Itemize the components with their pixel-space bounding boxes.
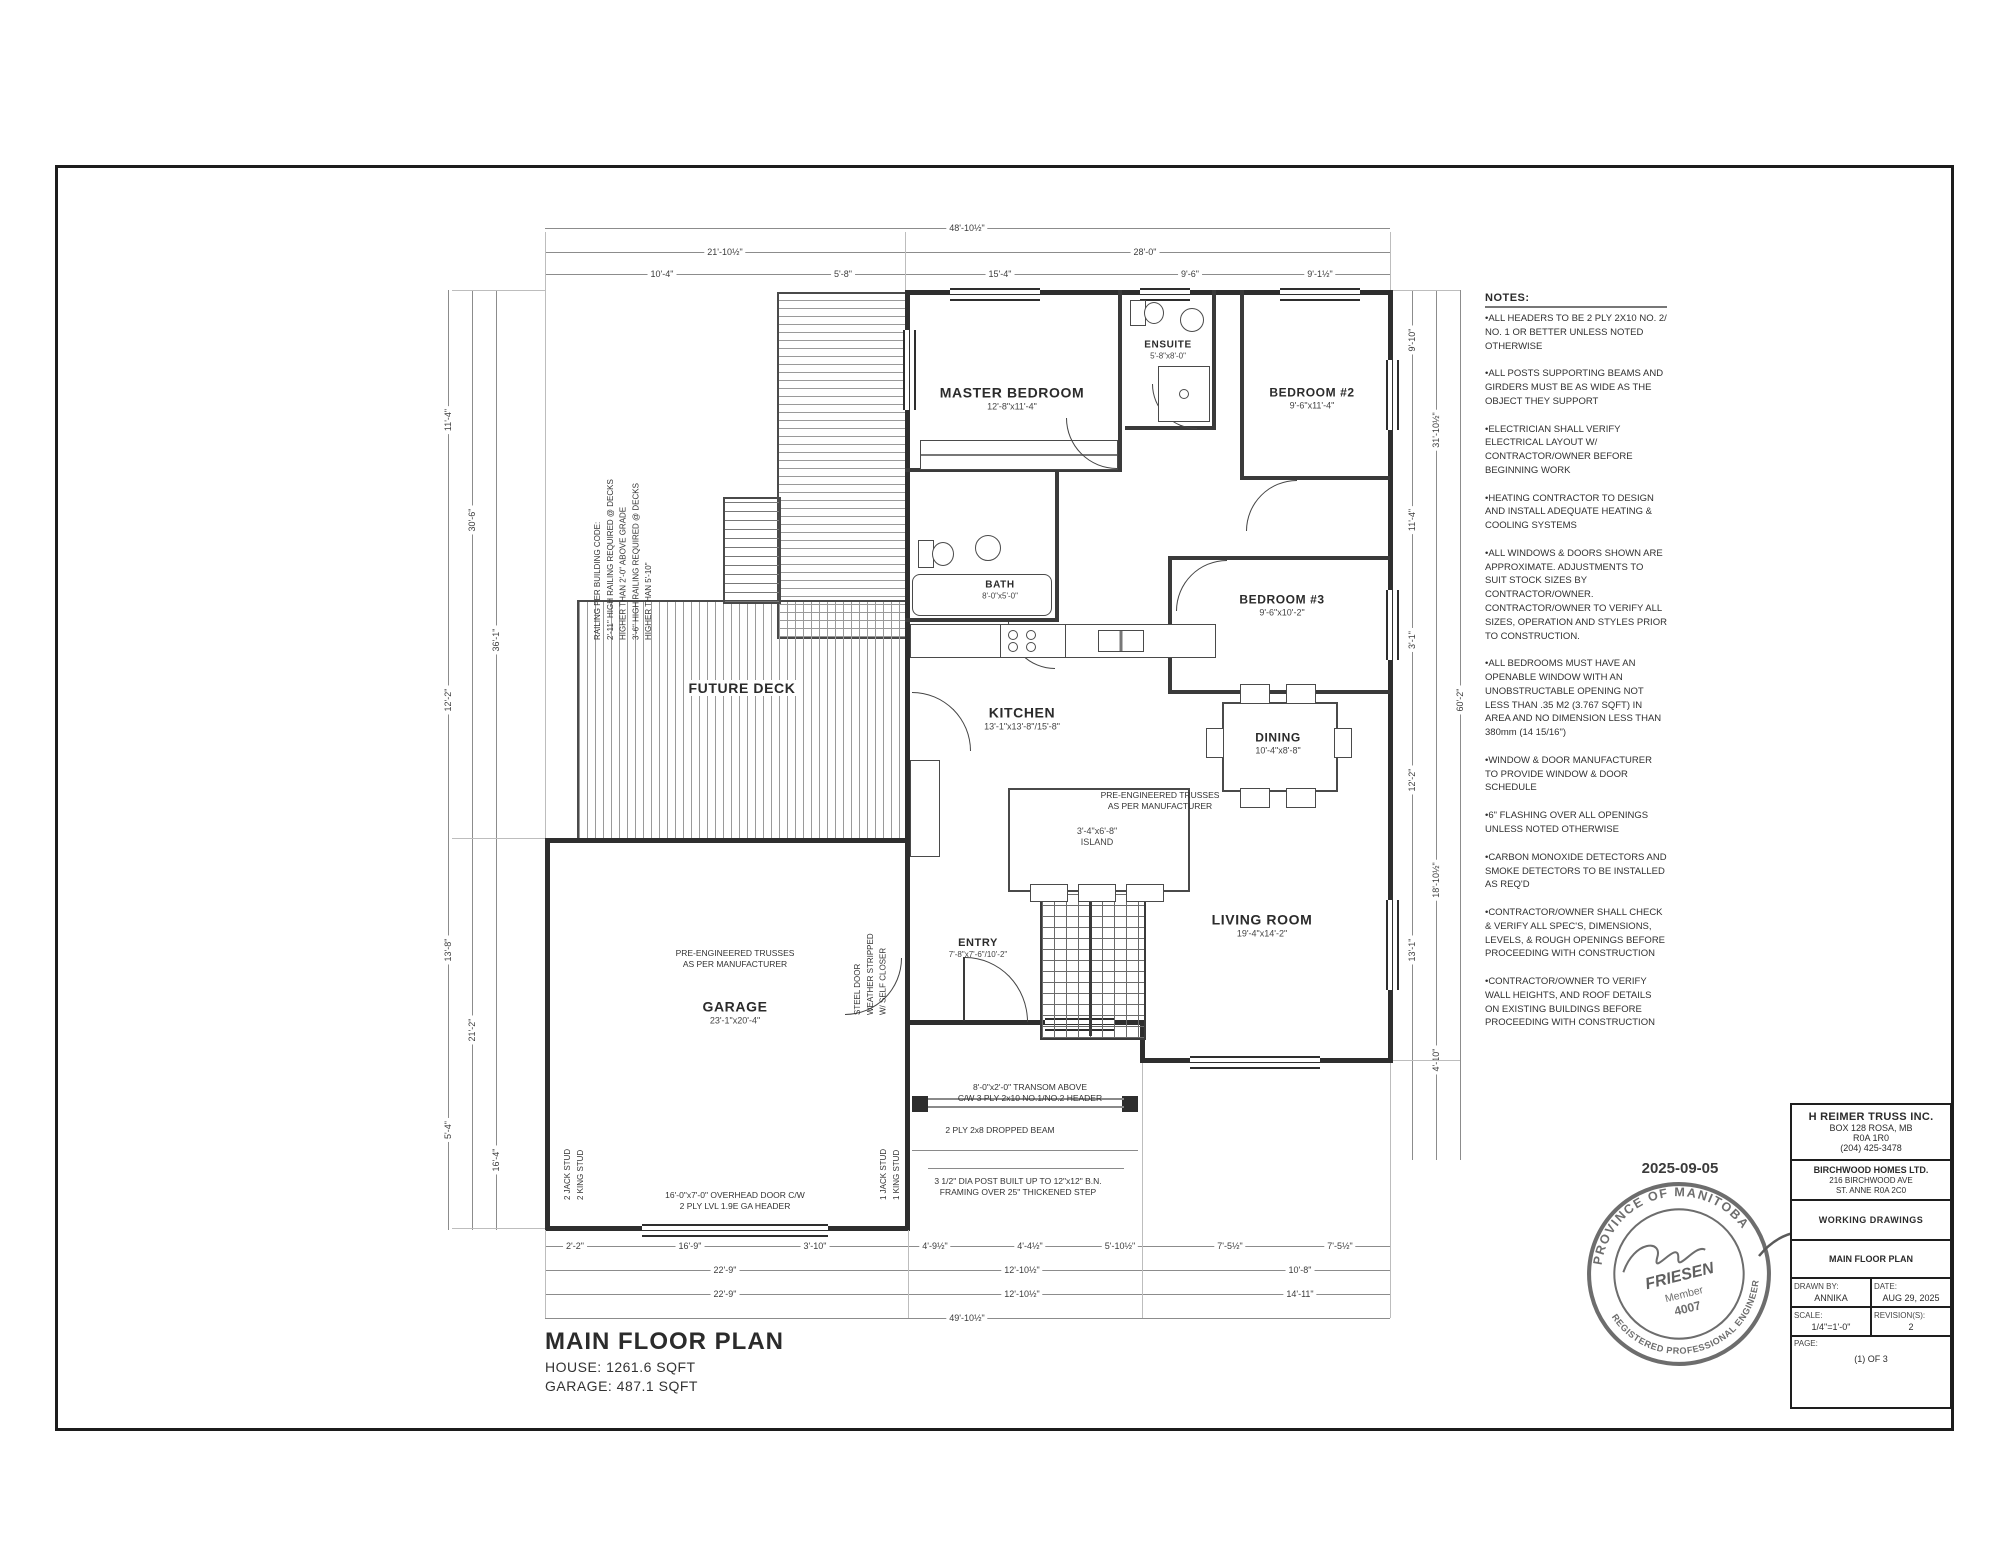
date-label: DATE: bbox=[1874, 1282, 1948, 1291]
client-name: BIRCHWOOD HOMES LTD. bbox=[1814, 1165, 1929, 1175]
dimension-label: 30'-6" bbox=[467, 506, 477, 535]
company-addr2: R0A 1R0 bbox=[1853, 1133, 1889, 1143]
doc-type: WORKING DRAWINGS bbox=[1819, 1215, 1924, 1225]
dimension-line bbox=[1460, 290, 1461, 1160]
extension-line bbox=[545, 232, 546, 838]
toilet-bowl bbox=[1144, 302, 1164, 324]
room-label-ensuite: ENSUITE5'-8"x8'-0" bbox=[1144, 340, 1192, 361]
title-block-client: BIRCHWOOD HOMES LTD. 216 BIRCHWOOD AVE S… bbox=[1792, 1161, 1950, 1201]
room-label-bath: BATH8'-0"x5'-0" bbox=[982, 580, 1018, 601]
dimension-label: 16'-4" bbox=[491, 1146, 501, 1175]
transom-note: 8'-0"x2'-0" TRANSOM ABOVE C/W 3 PLY 2x10… bbox=[958, 1082, 1102, 1105]
ensuite-sink bbox=[1180, 308, 1204, 332]
room-label-entry: ENTRY7'-8"x7'-6"/10'-2" bbox=[949, 937, 1007, 959]
dimension-label: 9'-10" bbox=[1407, 326, 1417, 355]
dimension-label: 22'-9" bbox=[711, 1289, 740, 1299]
revisions-value: 2 bbox=[1874, 1322, 1948, 1332]
dimension-label: 5'-8" bbox=[831, 269, 855, 279]
note-item: •6" FLASHING OVER ALL OPENINGS UNLESS NO… bbox=[1485, 809, 1667, 837]
page-value: (1) OF 3 bbox=[1794, 1354, 1948, 1364]
client-addr1: 216 BIRCHWOOD AVE bbox=[1829, 1176, 1912, 1185]
dimension-line bbox=[496, 290, 497, 1230]
note-item: •HEATING CONTRACTOR TO DESIGN AND INSTAL… bbox=[1485, 492, 1667, 533]
trusses-note-garage: PRE-ENGINEERED TRUSSES AS PER MANUFACTUR… bbox=[676, 948, 795, 971]
room-label-master-bedroom: MASTER BEDROOM12'-8"x11'-4" bbox=[940, 385, 1085, 412]
dropped-beam-note: 2 PLY 2x8 DROPPED BEAM bbox=[945, 1125, 1054, 1136]
wall bbox=[545, 838, 550, 1230]
future-deck-strip bbox=[777, 292, 909, 639]
dimension-label: 13'-8" bbox=[443, 936, 453, 965]
dimension-label: 3'-10" bbox=[801, 1241, 830, 1251]
wall bbox=[1168, 690, 1390, 694]
note-item: •CONTRACTOR/OWNER SHALL CHECK & VERIFY A… bbox=[1485, 906, 1667, 961]
window bbox=[1140, 288, 1190, 301]
dimension-label: 36'-1" bbox=[491, 626, 501, 655]
revisions-label: REVISION(S): bbox=[1874, 1311, 1948, 1320]
date-value: AUG 29, 2025 bbox=[1874, 1293, 1948, 1303]
title-block-scale-row: SCALE: 1/4"=1'-0" REVISION(S): 2 bbox=[1792, 1308, 1950, 1337]
title-block: H REIMER TRUSS INC. BOX 128 ROSA, MB R0A… bbox=[1790, 1103, 1952, 1409]
dimension-label: 18'-10½" bbox=[1431, 859, 1441, 900]
drawn-by-cell: DRAWN BY: ANNIKA bbox=[1792, 1279, 1872, 1306]
dimension-label: 12'-10½" bbox=[1001, 1265, 1042, 1275]
dimension-label: 9'-6" bbox=[1178, 269, 1202, 279]
dimension-line bbox=[545, 252, 1390, 253]
overhead-door-opening bbox=[642, 1224, 828, 1237]
date-cell: DATE: AUG 29, 2025 bbox=[1872, 1279, 1950, 1306]
wall bbox=[1212, 290, 1216, 430]
wall bbox=[905, 838, 910, 1230]
dimension-label: 22'-9" bbox=[711, 1265, 740, 1275]
room-label-island: 3'-4"x6'-8"ISLAND bbox=[1077, 825, 1117, 847]
wall bbox=[1055, 472, 1059, 622]
revisions-cell: REVISION(S): 2 bbox=[1872, 1308, 1950, 1335]
notes-panel: NOTES: •ALL HEADERS TO BE 2 PLY 2X10 NO.… bbox=[1485, 292, 1667, 1044]
dimension-label: 5'-10½" bbox=[1102, 1241, 1138, 1251]
dimension-label: 12'-2" bbox=[443, 686, 453, 715]
shower-drain bbox=[1179, 389, 1189, 399]
dimension-label: 15'-4" bbox=[986, 269, 1015, 279]
extension-line bbox=[1390, 1063, 1391, 1318]
wall bbox=[1168, 556, 1390, 560]
room-label-dining: DINING10'-4"x8'-8" bbox=[1255, 731, 1301, 756]
dimension-line bbox=[472, 290, 473, 1230]
title-block-company: H REIMER TRUSS INC. BOX 128 ROSA, MB R0A… bbox=[1792, 1105, 1950, 1161]
dining-chair bbox=[1286, 684, 1316, 704]
extension-line bbox=[905, 232, 906, 290]
scale-cell: SCALE: 1/4"=1'-0" bbox=[1792, 1308, 1872, 1335]
dimension-label: 10'-8" bbox=[1286, 1265, 1315, 1275]
deck-stairs bbox=[723, 497, 781, 604]
dimension-label: 4'-4½" bbox=[1014, 1241, 1045, 1251]
dimension-line bbox=[545, 1294, 1390, 1295]
pantry-cabinet bbox=[910, 760, 940, 857]
wall bbox=[1240, 290, 1244, 480]
room-label-bedroom2: BEDROOM #29'-6"x11'-4" bbox=[1269, 386, 1354, 411]
room-label-garage: GARAGE23'-1"x20'-4" bbox=[702, 999, 767, 1026]
dimension-label: 10'-4" bbox=[648, 269, 677, 279]
plan-title: MAIN FLOOR PLAN bbox=[545, 1328, 784, 1356]
bath-sink bbox=[975, 535, 1001, 561]
dimension-label: 21'-10½" bbox=[704, 247, 745, 257]
dimension-label: 11'-4" bbox=[443, 406, 453, 434]
porch-post bbox=[1122, 1096, 1138, 1112]
stove-burner bbox=[1026, 630, 1036, 640]
note-item: •ELECTRICIAN SHALL VERIFY ELECTRICAL LAY… bbox=[1485, 423, 1667, 478]
company-name: H REIMER TRUSS INC. bbox=[1809, 1111, 1934, 1123]
island-stool bbox=[1126, 884, 1164, 902]
dimension-label: 12'-10½" bbox=[1001, 1289, 1042, 1299]
sheet-name: MAIN FLOOR PLAN bbox=[1829, 1254, 1913, 1264]
scale-label: SCALE: bbox=[1794, 1311, 1868, 1320]
house-area: HOUSE: 1261.6 SQFT bbox=[545, 1359, 784, 1375]
dimension-label: 7'-5½" bbox=[1324, 1241, 1355, 1251]
note-item: •ALL POSTS SUPPORTING BEAMS AND GIRDERS … bbox=[1485, 367, 1667, 408]
dining-chair bbox=[1206, 728, 1224, 758]
dining-chair bbox=[1334, 728, 1352, 758]
window bbox=[1386, 360, 1399, 430]
stud-note-right: 1 JACK STUD 1 KING STUD bbox=[878, 1090, 904, 1200]
note-item: •CARBON MONOXIDE DETECTORS AND SMOKE DET… bbox=[1485, 851, 1667, 892]
company-phone: (204) 425-3478 bbox=[1840, 1143, 1902, 1153]
dimension-label: 28'-0" bbox=[1131, 247, 1160, 257]
dimension-label: 13'-1" bbox=[1407, 936, 1417, 965]
room-label-kitchen: KITCHEN13'-1"x13'-8"/15'-8" bbox=[984, 705, 1060, 732]
step-line bbox=[928, 1168, 1124, 1169]
extension-line bbox=[908, 1230, 909, 1318]
drawing-sheet: FUTURE DECK RAILING PER BUILDING CODE: 2… bbox=[0, 0, 2000, 1546]
title-block-doc-type: WORKING DRAWINGS bbox=[1792, 1201, 1950, 1241]
dining-chair bbox=[1240, 684, 1270, 704]
window bbox=[950, 288, 1040, 301]
dimension-label: 60'-2" bbox=[1455, 686, 1465, 715]
dimension-label: 12'-2" bbox=[1407, 766, 1417, 795]
dimension-label: 49'-10½" bbox=[946, 1313, 987, 1323]
dimension-label: 4'-9½" bbox=[919, 1241, 950, 1251]
title-block-sheet-name: MAIN FLOOR PLAN bbox=[1792, 1241, 1950, 1279]
page-label: PAGE: bbox=[1794, 1339, 1948, 1348]
wall bbox=[1118, 290, 1122, 472]
wall bbox=[828, 1226, 910, 1231]
extension-line bbox=[545, 1230, 546, 1318]
window bbox=[1280, 288, 1360, 301]
dimension-line bbox=[545, 1270, 1390, 1271]
stove-burner bbox=[1008, 630, 1018, 640]
extension-line bbox=[1142, 1063, 1143, 1318]
note-item: •CONTRACTOR/OWNER TO VERIFY WALL HEIGHTS… bbox=[1485, 975, 1667, 1030]
window bbox=[1386, 590, 1399, 660]
dimension-label: 31'-10½" bbox=[1431, 409, 1441, 450]
room-label-living-room: LIVING ROOM19'-4"x14'-2" bbox=[1212, 912, 1313, 939]
overhead-door-note: 16'-0"x7'-0" OVERHEAD DOOR C/W 2 PLY LVL… bbox=[665, 1190, 805, 1213]
dimension-label: 2'-2" bbox=[563, 1241, 587, 1251]
step-line bbox=[912, 1150, 1138, 1151]
drawn-by-label: DRAWN BY: bbox=[1794, 1282, 1868, 1291]
trusses-note-house: PRE-ENGINEERED TRUSSES AS PER MANUFACTUR… bbox=[1101, 790, 1220, 813]
wall bbox=[1125, 426, 1216, 430]
room-label-bedroom3: BEDROOM #39'-6"x10'-2" bbox=[1239, 593, 1324, 618]
stove-burner bbox=[1026, 642, 1036, 652]
window bbox=[1386, 900, 1399, 990]
client-addr3: R0A 2C0 bbox=[1874, 1186, 1906, 1195]
stair-rail bbox=[1089, 888, 1092, 1036]
dimension-label: 48'-10½" bbox=[946, 223, 987, 233]
extension-line bbox=[1390, 232, 1391, 290]
plan-title-group: MAIN FLOOR PLAN HOUSE: 1261.6 SQFT GARAG… bbox=[545, 1328, 784, 1394]
note-item: •ALL WINDOWS & DOORS SHOWN ARE APPROXIMA… bbox=[1485, 547, 1667, 643]
dimension-line bbox=[1412, 290, 1413, 1160]
dimension-label: 3'-1" bbox=[1407, 628, 1417, 652]
wall bbox=[1240, 476, 1390, 480]
drawn-by-value: ANNIKA bbox=[1794, 1293, 1868, 1303]
toilet-bowl bbox=[932, 542, 954, 566]
extension-line bbox=[1393, 290, 1460, 291]
extension-line bbox=[452, 1228, 545, 1229]
window bbox=[903, 330, 916, 410]
dimension-label: 21'-2" bbox=[467, 1016, 477, 1045]
dimension-label: 5'-4" bbox=[443, 1118, 453, 1142]
wall bbox=[545, 838, 910, 843]
stud-note-left: 2 JACK STUD 2 KING STUD bbox=[562, 1090, 588, 1200]
stove-burner bbox=[1008, 642, 1018, 652]
dining-chair bbox=[1240, 788, 1270, 808]
wall bbox=[545, 1226, 642, 1231]
note-item: •WINDOW & DOOR MANUFACTURER TO PROVIDE W… bbox=[1485, 754, 1667, 795]
scale-value: 1/4"=1'-0" bbox=[1794, 1322, 1868, 1332]
room-label-future-deck: FUTURE DECK bbox=[685, 680, 800, 696]
title-block-drawn-row: DRAWN BY: ANNIKA DATE: AUG 29, 2025 bbox=[1792, 1279, 1950, 1308]
door-leaf bbox=[963, 957, 965, 1021]
notes-title: NOTES: bbox=[1485, 292, 1667, 308]
interior-stairs bbox=[1040, 888, 1146, 1040]
extension-line bbox=[452, 838, 545, 839]
railing-note: RAILING PER BUILDING CODE: 2'-11" HIGH R… bbox=[592, 420, 656, 640]
dimension-line bbox=[545, 1246, 1390, 1247]
dimension-label: 9'-1½" bbox=[1304, 269, 1335, 279]
post-note: 3 1/2" DIA POST BUILT UP TO 12"x12" B.N.… bbox=[934, 1176, 1101, 1199]
island-stool bbox=[1030, 884, 1068, 902]
stamp-name: FRIESEN bbox=[1643, 1259, 1716, 1293]
note-item: •ALL BEDROOMS MUST HAVE AN OPENABLE WIND… bbox=[1485, 657, 1667, 740]
title-block-page-row: PAGE: (1) OF 3 bbox=[1792, 1337, 1950, 1366]
dropped-beam-line bbox=[928, 1106, 1124, 1108]
dimension-label: 11'-4" bbox=[1407, 506, 1417, 534]
dimension-label: 16'-9" bbox=[676, 1241, 705, 1251]
steel-door-note: STEEL DOOR WEATHER STRIPPED W/ SELF CLOS… bbox=[852, 905, 890, 1015]
note-item: •ALL HEADERS TO BE 2 PLY 2X10 NO. 2/ NO.… bbox=[1485, 312, 1667, 353]
company-addr1: BOX 128 ROSA, MB bbox=[1829, 1123, 1912, 1133]
kitchen-sink bbox=[1098, 630, 1144, 652]
island-stool bbox=[1078, 884, 1116, 902]
client-addr2: ST. ANNE bbox=[1836, 1186, 1872, 1195]
window bbox=[1190, 1056, 1320, 1069]
porch-post bbox=[912, 1096, 928, 1112]
dining-chair bbox=[1286, 788, 1316, 808]
extension-line bbox=[1393, 1060, 1460, 1061]
extension-line bbox=[452, 290, 545, 291]
stove bbox=[1000, 624, 1066, 658]
dimension-label: 14'-11" bbox=[1283, 1289, 1316, 1299]
dimension-label: 7'-5½" bbox=[1214, 1241, 1245, 1251]
garage-area: GARAGE: 487.1 SQFT bbox=[545, 1378, 784, 1394]
